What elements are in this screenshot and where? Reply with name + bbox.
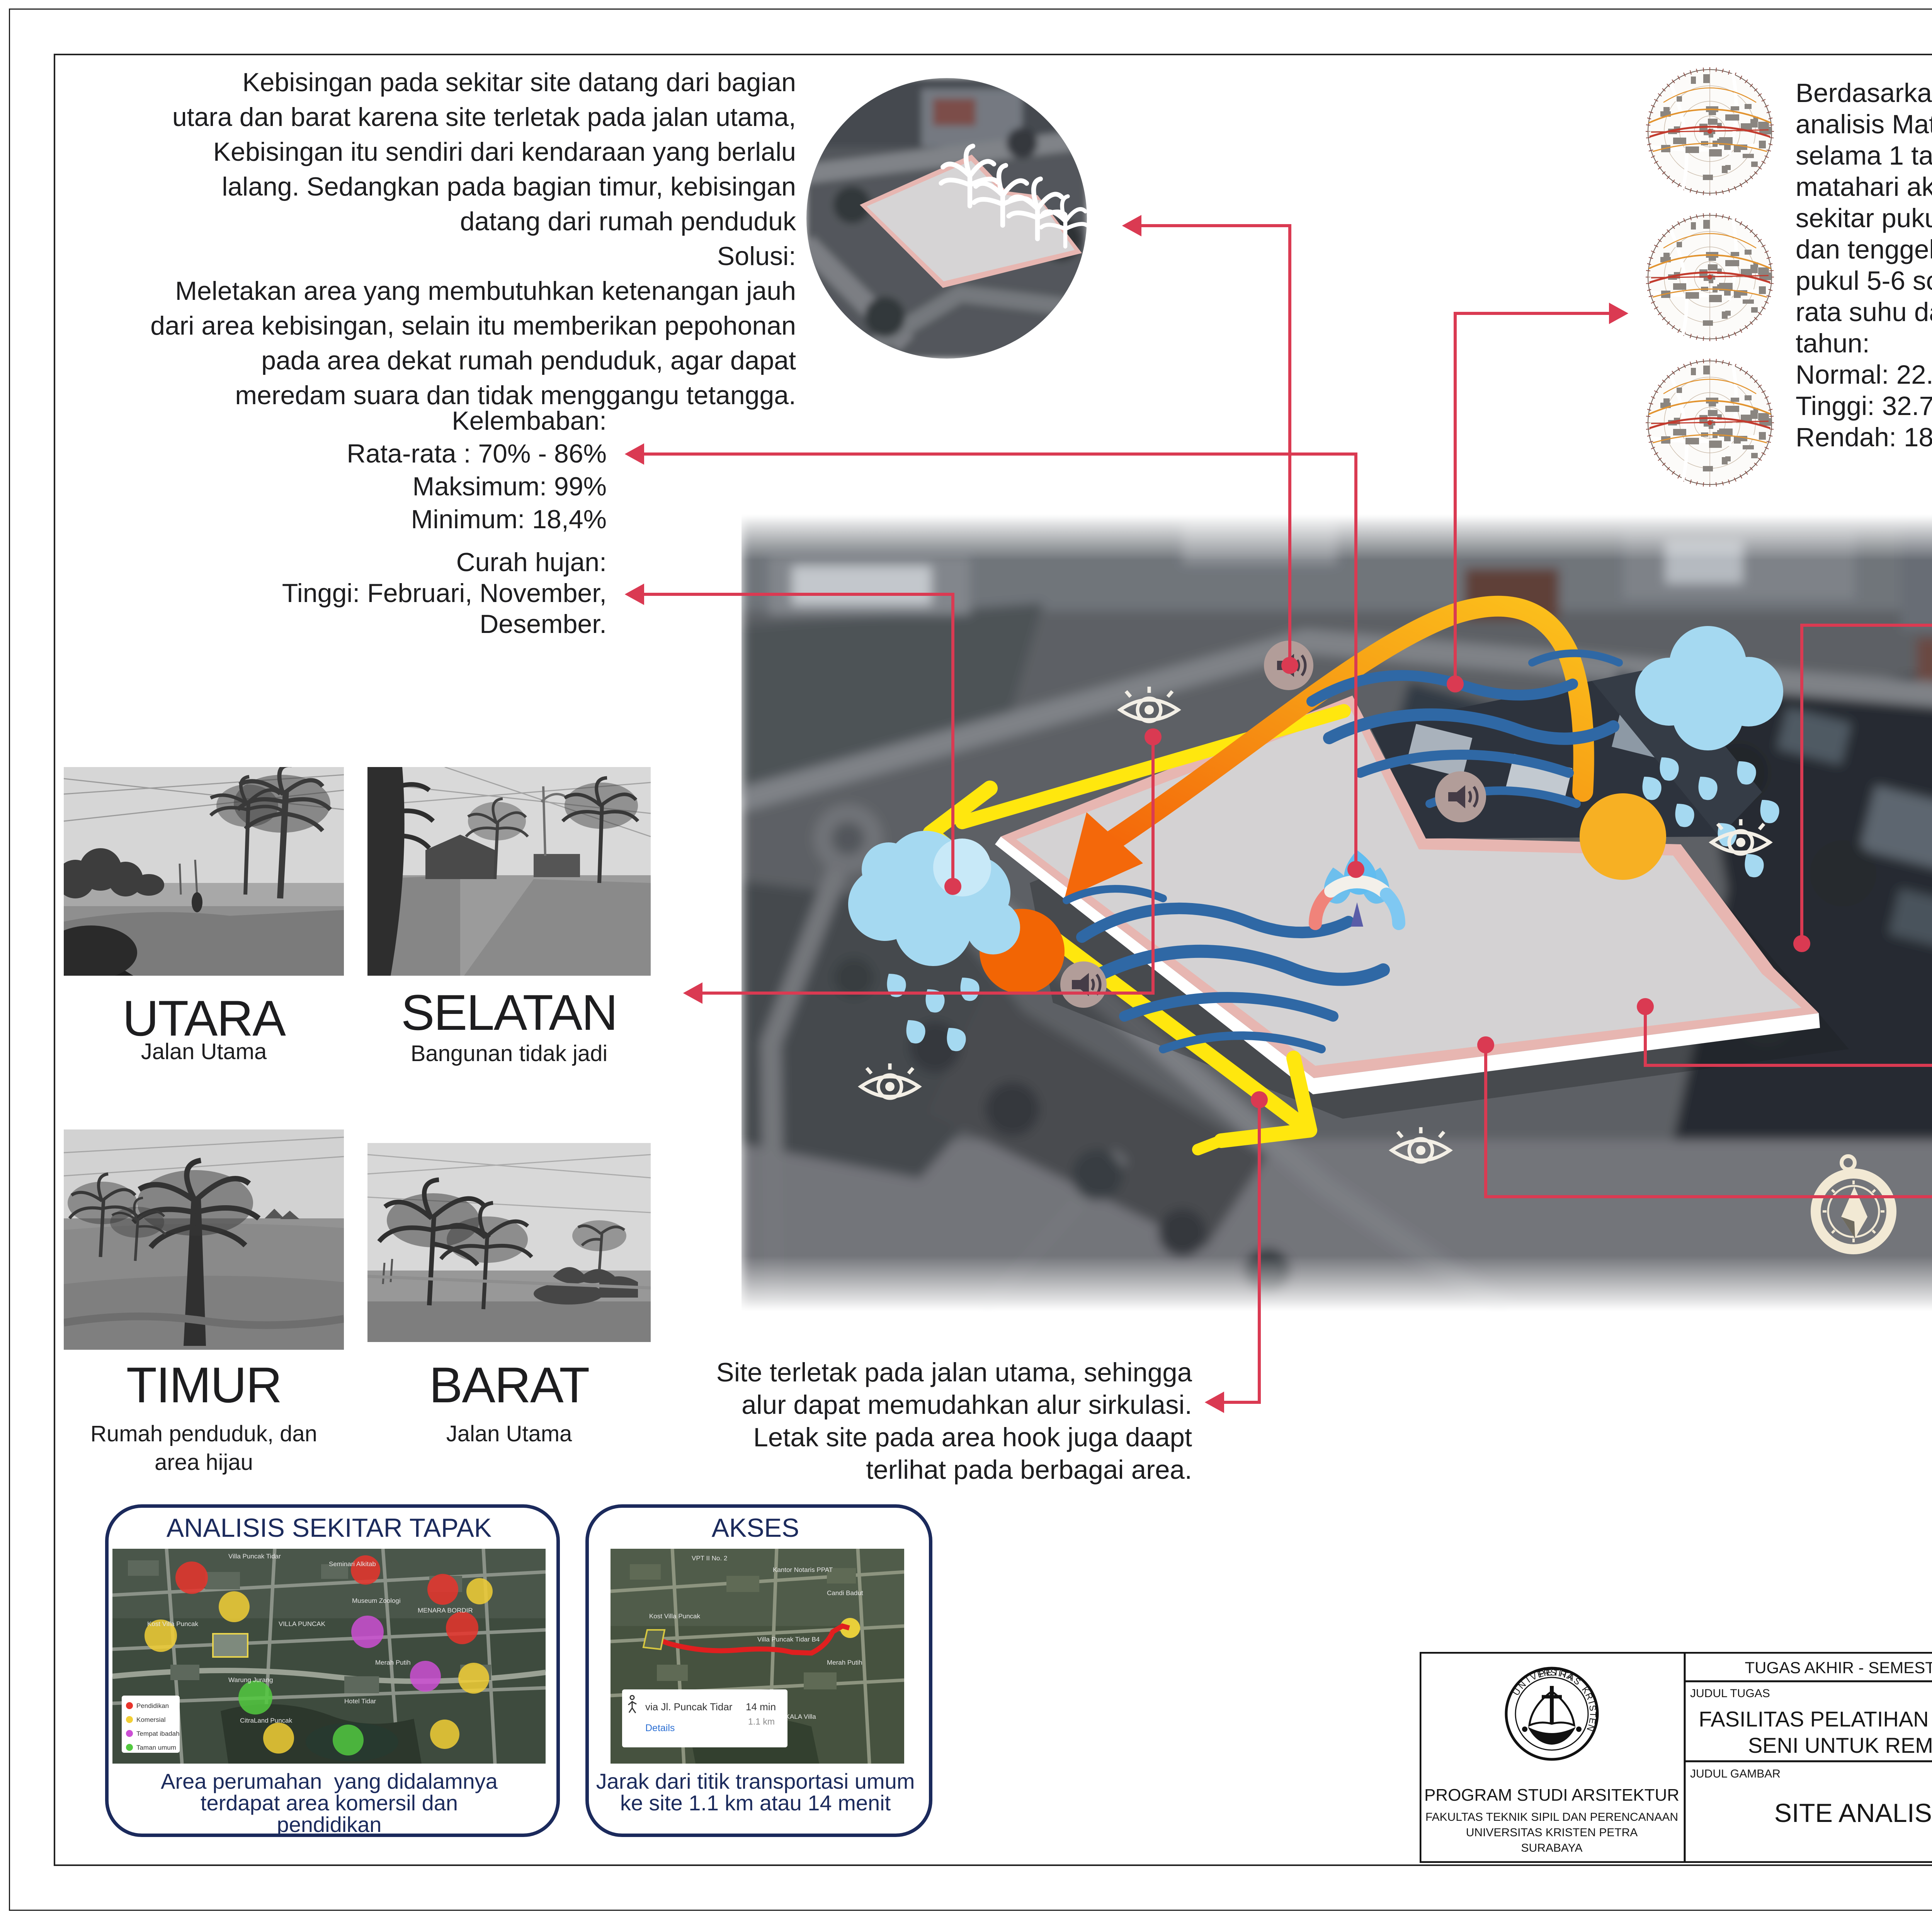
svg-text:UNIVERSITAS KRISTEN PETRA: UNIVERSITAS KRISTEN PETRA bbox=[1466, 1826, 1638, 1839]
svg-text:FAKULTAS TEKNIK SIPIL DAN PERE: FAKULTAS TEKNIK SIPIL DAN PERENCANAAN bbox=[1425, 1811, 1678, 1823]
svg-text:SENI UNTUK REMAJA DI MALANG: SENI UNTUK REMAJA DI MALANG bbox=[1748, 1733, 1932, 1757]
svg-text:JUDUL GAMBAR: JUDUL GAMBAR bbox=[1690, 1767, 1781, 1780]
svg-text:T: T bbox=[1588, 1712, 1598, 1718]
svg-text:TUGAS AKHIR - SEMESTER GENAP 2: TUGAS AKHIR - SEMESTER GENAP 2024/2025 bbox=[1745, 1658, 1932, 1677]
svg-text:T: T bbox=[1553, 1667, 1560, 1678]
svg-text:E: E bbox=[1546, 1667, 1552, 1678]
svg-text:SITE ANALISIS: SITE ANALISIS bbox=[1774, 1798, 1932, 1828]
svg-text:JUDUL TUGAS: JUDUL TUGAS bbox=[1690, 1687, 1770, 1700]
svg-text:FASILITAS PELATIHAN DAN PERTUN: FASILITAS PELATIHAN DAN PERTUNJUKAN bbox=[1699, 1707, 1932, 1731]
svg-text:PROGRAM STUDI ARSITEKTUR: PROGRAM STUDI ARSITEKTUR bbox=[1424, 1786, 1679, 1805]
svg-text:SURABAYA: SURABAYA bbox=[1521, 1842, 1583, 1854]
